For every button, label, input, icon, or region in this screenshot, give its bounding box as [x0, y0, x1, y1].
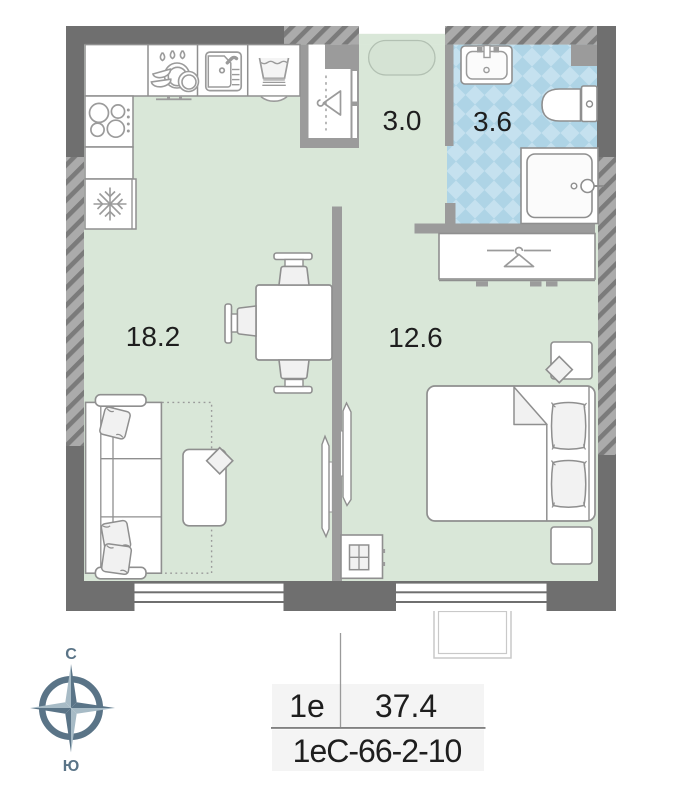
- svg-text:1e: 1e: [289, 688, 325, 724]
- svg-text:1еС-66-2-10: 1еС-66-2-10: [293, 733, 462, 769]
- svg-text:С: С: [65, 646, 77, 663]
- svg-text:3.6: 3.6: [473, 106, 512, 137]
- svg-text:12.6: 12.6: [388, 322, 443, 353]
- svg-text:37.4: 37.4: [375, 688, 437, 724]
- svg-text:3.0: 3.0: [383, 105, 422, 136]
- svg-text:18.2: 18.2: [126, 321, 181, 352]
- svg-text:Ю: Ю: [63, 758, 80, 775]
